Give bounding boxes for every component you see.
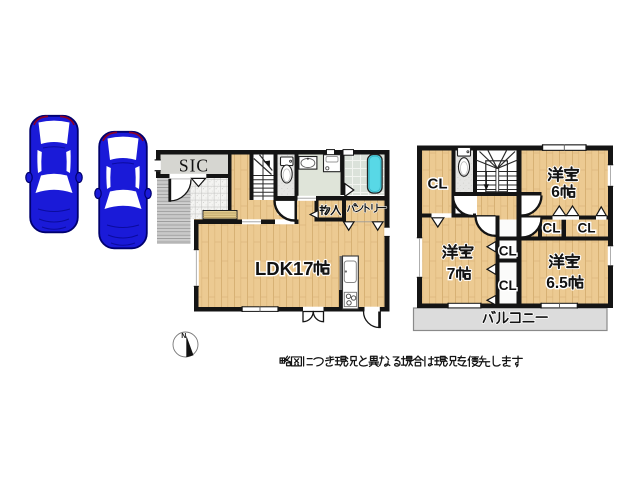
svg-text:CL: CL: [543, 220, 561, 235]
svg-text:N: N: [181, 333, 186, 340]
svg-text:CL: CL: [499, 278, 517, 293]
svg-text:CL: CL: [428, 176, 448, 193]
svg-text:SIC: SIC: [179, 155, 209, 175]
svg-text:CL: CL: [499, 243, 517, 258]
svg-text:7: 7: [447, 266, 456, 283]
svg-text:6.5: 6.5: [546, 275, 568, 292]
svg-text:6: 6: [551, 184, 560, 201]
svg-text:CL: CL: [578, 220, 596, 235]
svg-text:LDK17: LDK17: [255, 258, 314, 279]
